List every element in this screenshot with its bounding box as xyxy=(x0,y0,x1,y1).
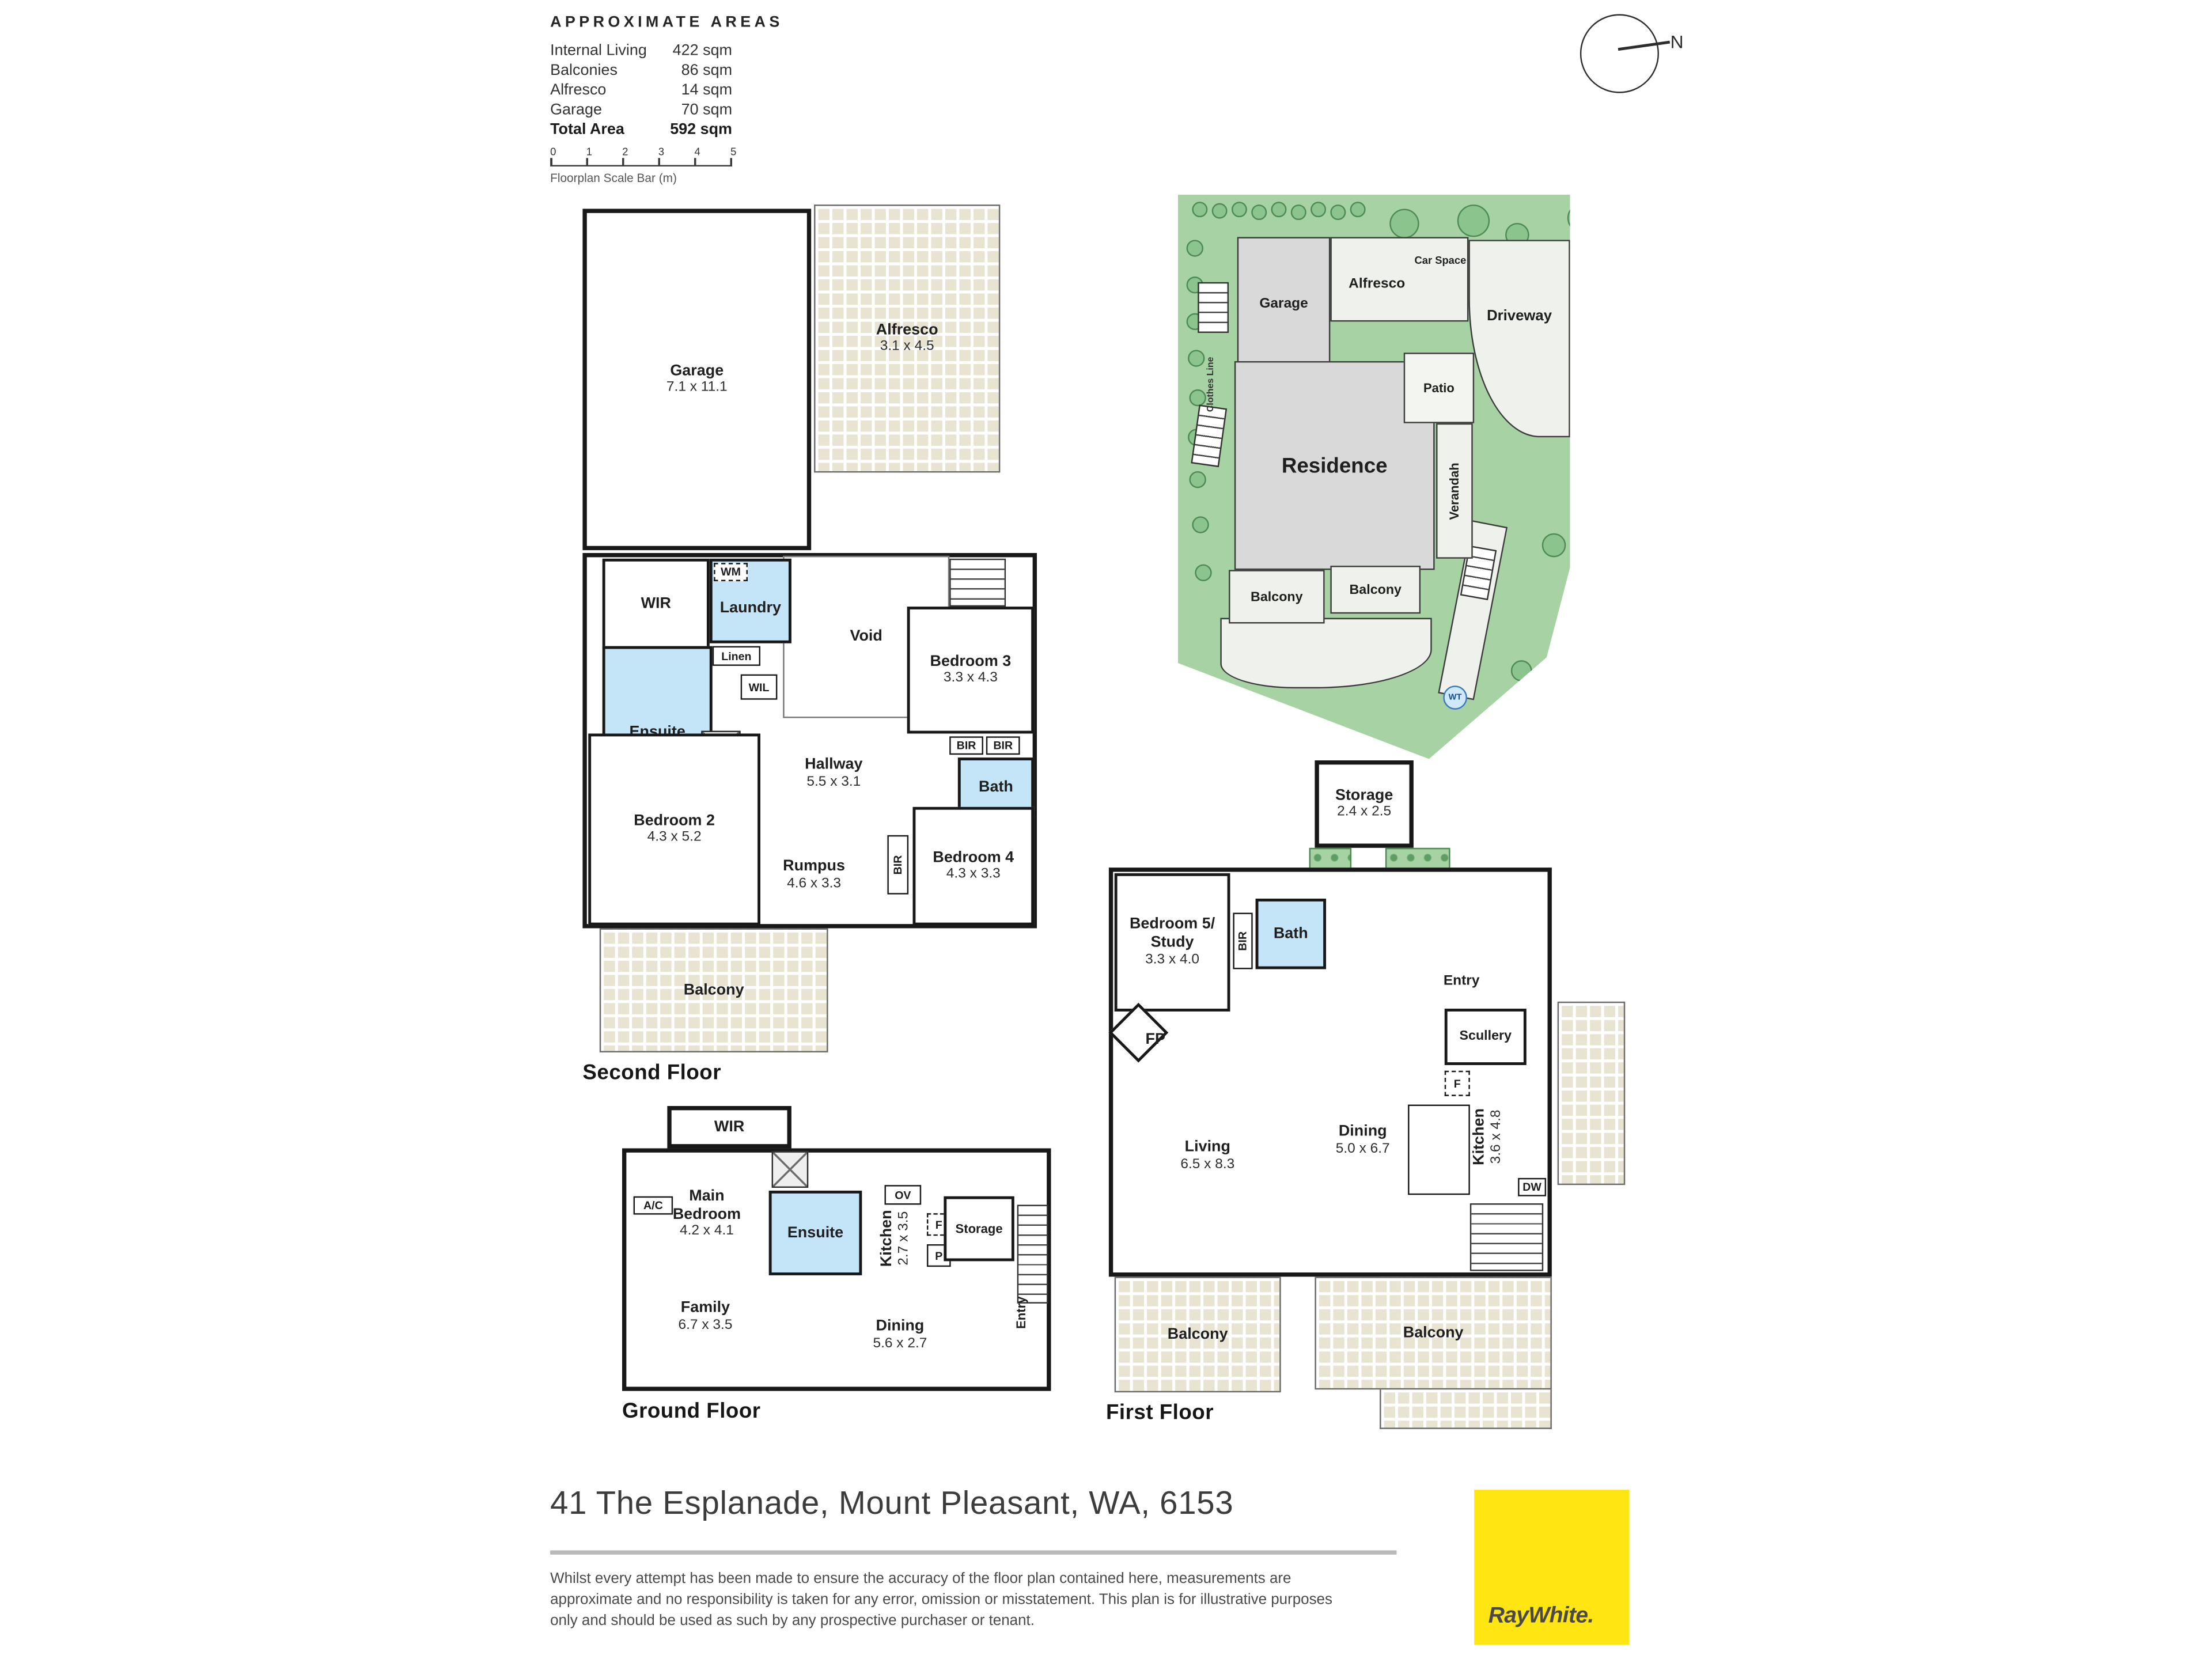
chip-label: F xyxy=(935,1218,942,1231)
room-name: Bath xyxy=(979,778,1013,796)
room-living-label: Living 6.5 x 8.3 xyxy=(1157,1138,1258,1173)
room-dims: 5.6 x 2.7 xyxy=(873,1335,927,1352)
room-balcony: Balcony xyxy=(600,928,828,1052)
stairs-icon xyxy=(1470,1203,1543,1271)
room-scullery: Scullery xyxy=(1445,1009,1527,1065)
divider xyxy=(550,1550,1396,1554)
room-name: Balcony xyxy=(684,982,744,999)
room-name: Main xyxy=(689,1188,724,1206)
site-driveway xyxy=(1468,240,1570,437)
tree-icon xyxy=(1232,202,1247,217)
tree-icon xyxy=(1601,364,1626,388)
room-dims: 6.5 x 8.3 xyxy=(1180,1156,1234,1173)
room-name: Garage xyxy=(1259,296,1308,311)
room-dims: 3.3 x 4.3 xyxy=(944,671,998,687)
tree-icon xyxy=(1310,202,1326,217)
room-name: Entry xyxy=(1014,1296,1028,1328)
tree-icon xyxy=(1599,480,1623,504)
room-dining-label: Dining 5.6 x 2.7 xyxy=(849,1317,950,1352)
room-dims: 7.1 x 11.1 xyxy=(666,380,728,397)
area-total-value: 592 sqm xyxy=(670,122,732,138)
tree-icon xyxy=(1189,471,1206,488)
second-floor-plan: Garage 7.1 x 11.1 Alfresco 3.1 x 4.5 Voi… xyxy=(571,198,1058,1093)
raywhite-logo: RayWhite. xyxy=(1474,1490,1629,1645)
room-storage: Storage xyxy=(944,1196,1014,1262)
room-rumpus-label: Rumpus 4.6 x 3.3 xyxy=(760,858,868,892)
tree-icon xyxy=(1192,516,1209,533)
room-name: Verandah xyxy=(1448,463,1461,520)
room-bedroom5-study: Bedroom 5/ Study 3.3 x 4.0 xyxy=(1115,873,1230,1012)
garden-path xyxy=(1220,618,1431,688)
dishwasher-chip: DW xyxy=(1518,1178,1546,1196)
tree-icon xyxy=(1542,533,1566,558)
room-name: Laundry xyxy=(720,599,781,617)
room-name: Bedroom xyxy=(673,1206,741,1224)
room-wir: WIR xyxy=(603,559,710,649)
property-address: 41 The Esplanade, Mount Pleasant, WA, 61… xyxy=(550,1484,1233,1522)
floor-label: Ground Floor xyxy=(622,1399,761,1423)
area-row: Internal Living 422 sqm xyxy=(550,42,732,59)
room-alfresco: Alfresco 3.1 x 4.5 xyxy=(814,204,1000,472)
water-tank-icon: WT xyxy=(1443,685,1467,710)
room-name: Rumpus xyxy=(783,858,845,876)
room-hallway-label: Hallway 5.5 x 3.1 xyxy=(783,756,884,791)
room-name: Ensuite xyxy=(787,1224,843,1242)
chip-label: BIR xyxy=(993,739,1013,752)
washing-machine-chip: WM xyxy=(714,563,748,581)
tree-icon xyxy=(1291,204,1306,220)
tree-icon xyxy=(1271,202,1287,217)
room-name: Kitchen xyxy=(1471,1108,1488,1165)
area-label: Balconies xyxy=(550,62,618,79)
area-value: 70 sqm xyxy=(681,101,732,118)
room-name: WIR xyxy=(641,595,671,613)
room-dims: 3.3 x 4.0 xyxy=(1145,952,1199,968)
scale-bar xyxy=(550,158,732,166)
chip-label: WIL xyxy=(749,681,770,694)
scale-tick: 5 xyxy=(730,145,736,158)
room-name: Storage xyxy=(1335,787,1393,805)
room-name: Family xyxy=(681,1300,730,1317)
room-dims: 4.6 x 3.3 xyxy=(787,876,841,892)
scale-tick: 3 xyxy=(658,145,664,158)
first-floor-plan: Storage 2.4 x 2.5 Bedroom 5/ Study 3.3 x… xyxy=(1103,755,1653,1449)
area-row: Alfresco 14 sqm xyxy=(550,82,732,99)
site-alfresco-label: Alfresco xyxy=(1330,276,1423,292)
bir-chip: BIR xyxy=(986,736,1020,755)
room-wir: WIR xyxy=(667,1106,791,1148)
room-bedroom4: Bedroom 4 4.3 x 3.3 xyxy=(912,807,1034,926)
area-value: 14 sqm xyxy=(681,82,732,99)
fridge-chip: F xyxy=(1445,1071,1470,1096)
room-balcony: Balcony xyxy=(1115,1277,1281,1392)
chip-label: BIR xyxy=(957,739,976,752)
tree-icon xyxy=(1192,202,1207,217)
stairs-icon xyxy=(949,559,1006,607)
site-clothes-line-label: Clothes Line xyxy=(1206,347,1216,420)
scale-tick: 2 xyxy=(622,145,628,158)
room-name: Entry xyxy=(1444,974,1480,990)
tree-icon xyxy=(1576,423,1597,445)
chip-label: DW xyxy=(1522,1181,1541,1194)
tree-icon xyxy=(1597,268,1621,292)
room-name: Storage xyxy=(956,1221,1003,1236)
room-main-bedroom-label: Main Bedroom 4.2 x 4.1 xyxy=(653,1188,760,1240)
tree-icon xyxy=(1212,203,1228,219)
room-name: Bedroom 3 xyxy=(930,653,1012,671)
terrace-strip xyxy=(1558,1002,1626,1185)
tree-icon xyxy=(1350,202,1366,217)
room-name: Living xyxy=(1185,1138,1230,1156)
kitchen-island xyxy=(1408,1105,1470,1195)
room-garage: Garage 7.1 x 11.1 xyxy=(582,209,811,550)
room-bath: Bath xyxy=(1256,899,1326,969)
tree-icon xyxy=(1330,204,1346,220)
scale-tick: 4 xyxy=(695,145,700,158)
chip-label: WM xyxy=(721,566,741,578)
room-name: Balcony xyxy=(1403,1324,1464,1342)
chip-label: P xyxy=(935,1249,942,1262)
room-dims: 5.5 x 3.1 xyxy=(806,774,861,791)
raywhite-brand-text: RayWhite. xyxy=(1488,1604,1594,1629)
tree-icon xyxy=(1189,389,1206,406)
room-name: Kitchen xyxy=(878,1210,896,1267)
chip-label: BIR xyxy=(1237,931,1249,951)
room-name: FP xyxy=(1145,1031,1165,1049)
tree-icon xyxy=(1188,350,1205,366)
room-name: Garage xyxy=(670,362,724,380)
room-name: Driveway xyxy=(1487,308,1552,324)
area-label: Alfresco xyxy=(550,82,606,99)
site-driveway-label: Driveway xyxy=(1468,308,1570,324)
room-dims: 4.2 x 4.1 xyxy=(680,1224,734,1240)
water-tank-label: WT xyxy=(1449,694,1462,702)
room-name: Bedroom 2 xyxy=(634,812,715,830)
tree-icon xyxy=(1567,203,1597,233)
site-plan: Driveway Alfresco Car Space Garage Resid… xyxy=(1178,195,1570,759)
area-label: Internal Living xyxy=(550,42,647,59)
linen-chip: Linen xyxy=(713,646,760,666)
bir-chip: BIR xyxy=(887,835,908,895)
area-value: 422 sqm xyxy=(673,42,732,59)
room-ensuite: Ensuite xyxy=(769,1191,862,1275)
room-name: Bedroom 5/ xyxy=(1130,916,1215,934)
room-name: Bath xyxy=(1274,925,1308,943)
disclaimer-text: Whilst every attempt has been made to en… xyxy=(550,1569,1335,1631)
area-total-row: Total Area 592 sqm xyxy=(550,122,732,138)
room-bedroom3: Bedroom 3 3.3 x 4.3 xyxy=(907,607,1034,733)
site-patio: Patio xyxy=(1404,353,1474,423)
area-value: 86 sqm xyxy=(681,62,732,79)
room-dims: 5.0 x 6.7 xyxy=(1336,1141,1390,1157)
site-balcony: Balcony xyxy=(1229,570,1325,623)
room-name: Clothes Line xyxy=(1206,356,1216,411)
tree-icon xyxy=(1187,240,1203,256)
chip-label: Linen xyxy=(721,650,751,662)
room-name: Hallway xyxy=(805,756,862,774)
room-name: Alfresco xyxy=(1349,276,1405,292)
compass-north-label: N xyxy=(1671,31,1684,52)
room-name: Residence xyxy=(1282,453,1388,478)
area-total-label: Total Area xyxy=(550,122,624,138)
room-name: Dining xyxy=(1339,1123,1387,1141)
room-name: Car Space xyxy=(1414,254,1466,267)
area-row: Balconies 86 sqm xyxy=(550,62,732,79)
area-label: Garage xyxy=(550,101,602,118)
room-name: Balcony xyxy=(1168,1325,1228,1343)
room-name: Alfresco xyxy=(876,321,938,339)
site-balcony: Balcony xyxy=(1330,566,1421,613)
scale-tick: 1 xyxy=(586,145,592,158)
room-bedroom2: Bedroom 2 4.3 x 5.2 xyxy=(588,733,760,925)
entry-label: Entry xyxy=(1433,974,1490,990)
room-dims: 3.1 x 4.5 xyxy=(880,339,934,356)
room-storage: Storage 2.4 x 2.5 xyxy=(1315,760,1413,848)
site-verandah: Verandah xyxy=(1436,423,1473,559)
compass-icon xyxy=(1580,14,1659,93)
chip-label: F xyxy=(1454,1077,1461,1090)
floor-label: First Floor xyxy=(1106,1401,1214,1425)
scale-tick: 0 xyxy=(550,145,556,158)
room-dims: 2.7 x 3.5 xyxy=(896,1211,913,1266)
bir-chip: BIR xyxy=(1233,912,1252,969)
room-dims: 4.3 x 3.3 xyxy=(946,866,1001,883)
scale-bar-caption: Floorplan Scale Bar (m) xyxy=(550,171,748,184)
room-name: Bedroom 4 xyxy=(933,849,1014,866)
bir-chip: BIR xyxy=(949,736,983,755)
room-name: WIR xyxy=(714,1118,744,1136)
scale-bar-ticks: 0 1 2 3 4 5 xyxy=(550,145,736,158)
room-dims: 6.7 x 3.5 xyxy=(679,1317,733,1334)
stairs-icon xyxy=(1198,282,1229,333)
area-row: Garage 70 sqm xyxy=(550,101,732,118)
tree-icon xyxy=(1389,209,1419,238)
room-label: Alfresco 3.1 x 4.5 xyxy=(876,321,938,356)
floorplan-page: APPROXIMATE AREAS Internal Living 422 sq… xyxy=(0,0,2212,1659)
chip-label: BIR xyxy=(892,855,904,874)
room-name: Scullery xyxy=(1460,1029,1512,1045)
site-garage: Garage xyxy=(1237,237,1331,369)
room-kitchen-label: Kitchen 3.6 x 4.8 xyxy=(1467,1086,1509,1188)
tree-icon xyxy=(1511,660,1532,681)
room-name: Patio xyxy=(1423,381,1455,395)
tree-icon xyxy=(1251,204,1267,220)
room-name: Void xyxy=(850,628,882,646)
tree-icon xyxy=(1195,565,1211,581)
room-kitchen-label: Kitchen 2.7 x 3.5 xyxy=(876,1194,916,1284)
room-dims: 2.4 x 2.5 xyxy=(1337,805,1391,821)
tree-icon xyxy=(1457,204,1490,237)
room-dining-label: Dining 5.0 x 6.7 xyxy=(1312,1123,1414,1157)
wil-chip: WIL xyxy=(741,675,778,700)
areas-panel: APPROXIMATE AREAS Internal Living 422 sq… xyxy=(550,14,748,184)
entry-label: Entry xyxy=(1012,1281,1031,1343)
ground-floor-plan: WIR A/C Main Bedroom 4.2 x 4.1 Ensuite O… xyxy=(613,1097,1065,1436)
areas-title: APPROXIMATE AREAS xyxy=(550,14,748,31)
room-name: Study xyxy=(1151,934,1194,952)
room-family-label: Family 6.7 x 3.5 xyxy=(654,1300,756,1334)
site-car-space-label: Car Space xyxy=(1398,254,1483,267)
room-dims: 4.3 x 5.2 xyxy=(647,830,702,847)
tree-icon xyxy=(1596,565,1617,586)
room-name: Balcony xyxy=(1349,582,1402,597)
shower-icon xyxy=(772,1151,809,1188)
room-name: Dining xyxy=(876,1317,925,1335)
room-name: Balcony xyxy=(1251,589,1303,604)
room-balcony: Balcony xyxy=(1315,1277,1551,1389)
floor-label: Second Floor xyxy=(582,1061,721,1085)
fireplace-label: FP xyxy=(1134,1031,1176,1049)
room-dims: 3.6 x 4.8 xyxy=(1488,1110,1505,1164)
tree-icon xyxy=(1576,618,1600,642)
